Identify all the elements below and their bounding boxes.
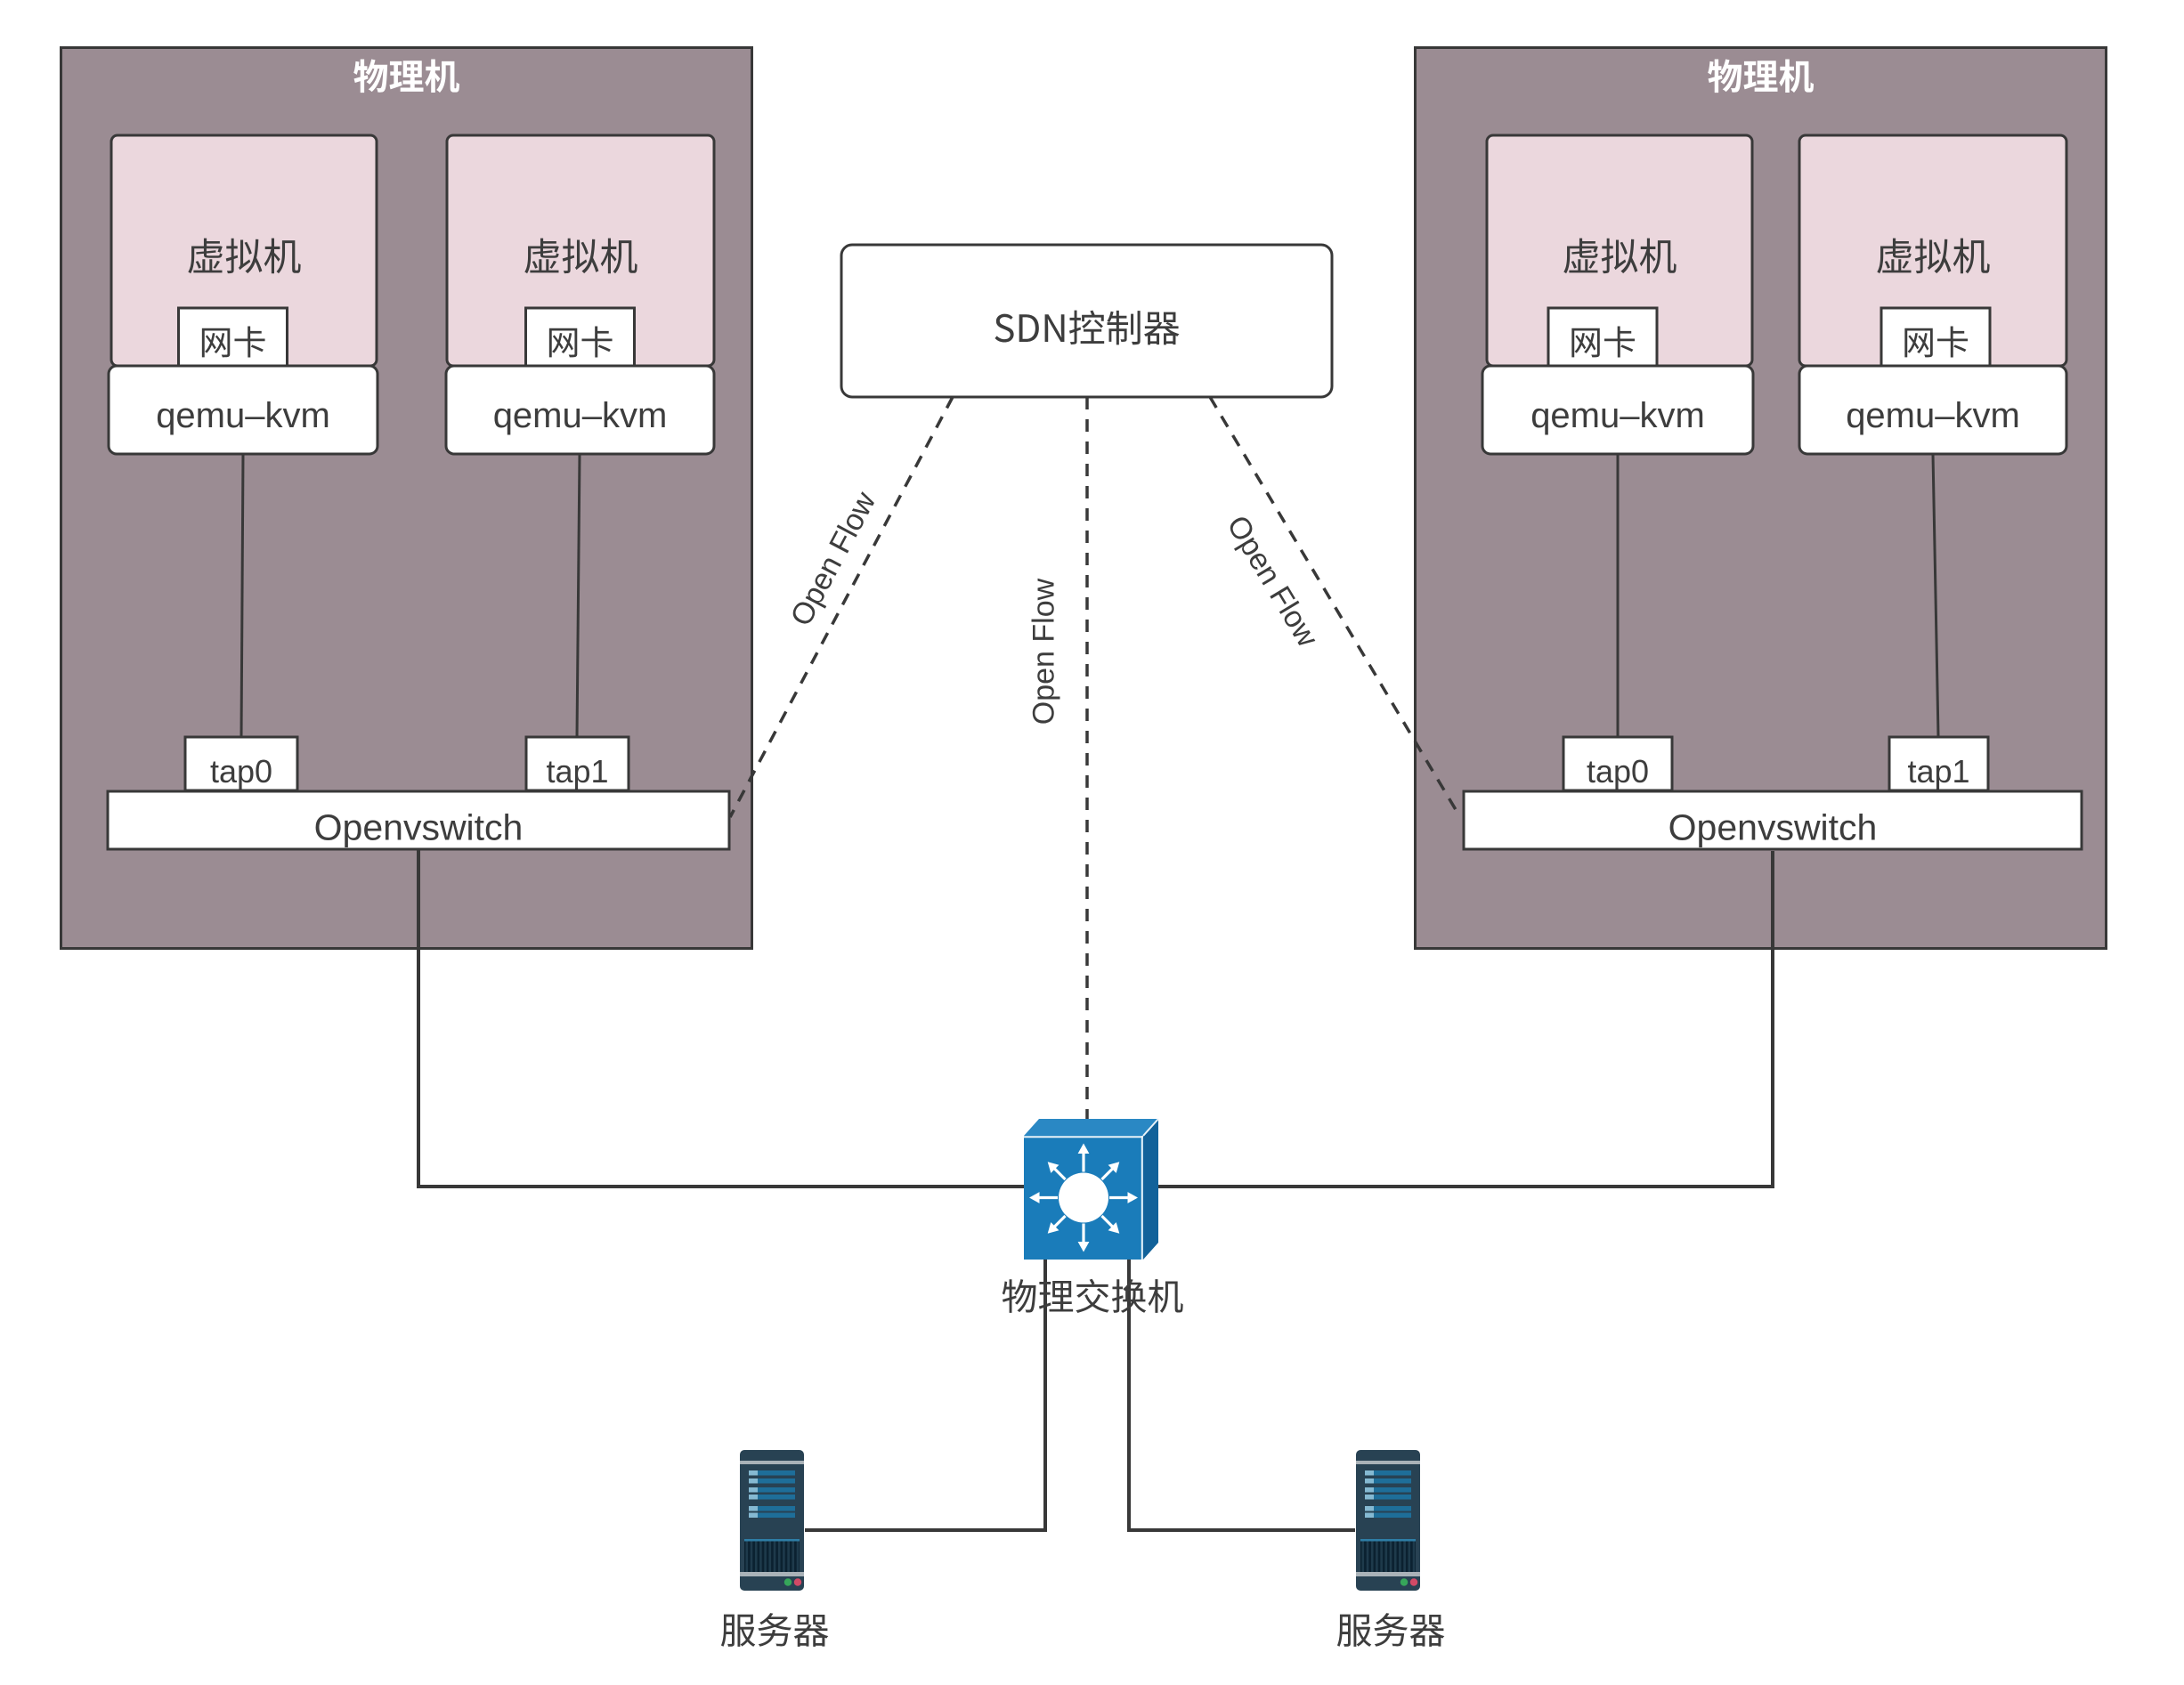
svg-text:qemu–kvm: qemu–kvm (1530, 396, 1705, 435)
svg-text:tap1: tap1 (1907, 753, 1969, 790)
svg-text:Openvswitch: Openvswitch (1668, 807, 1878, 848)
svg-text:qemu–kvm: qemu–kvm (156, 396, 330, 435)
svg-text:qemu–kvm: qemu–kvm (493, 396, 668, 435)
svg-text:tap1: tap1 (546, 753, 608, 790)
svg-text:qemu–kvm: qemu–kvm (1846, 396, 2020, 435)
svg-text:Openvswitch: Openvswitch (314, 807, 524, 848)
svg-text:Open Flow: Open Flow (1027, 578, 1061, 725)
svg-text:tap0: tap0 (1587, 753, 1649, 790)
svg-text:tap0: tap0 (210, 753, 272, 790)
